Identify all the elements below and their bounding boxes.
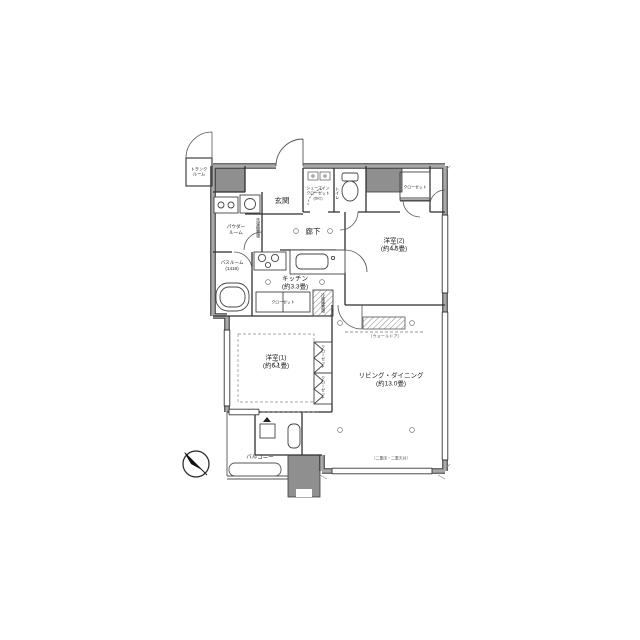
label-kitchen-closet: クローゼット [271, 299, 294, 304]
trunk-room [186, 132, 212, 186]
label-bedroom2-closet: クローゼット [403, 184, 426, 189]
entrance-door [276, 139, 303, 166]
meter-box-notch [296, 489, 312, 497]
label-hallway: 廊下 [306, 227, 321, 237]
label-wall-door: （ウォールドア） [368, 333, 402, 338]
balcony-outline [227, 412, 288, 479]
label-bedroom2: 洋室(2) (約4.5畳) [381, 238, 407, 255]
vanity-icon [214, 197, 238, 213]
stove-icon [254, 252, 286, 270]
counter-box [363, 317, 405, 329]
bedroom2-closet-box [400, 172, 430, 217]
living-door-arc [338, 305, 362, 329]
label-living-dining: リビング・ダイニング (約13.0畳) [359, 373, 424, 390]
bedroom2-door-arc [345, 250, 367, 272]
floor-plan-page: トランク ルーム 玄関 シューズイン クローゼット (SIC) トイレ 廊下 パ… [0, 0, 640, 640]
label-bedroom1-closet-b: クローゼット [321, 376, 325, 399]
compass-icon [183, 451, 209, 477]
label-shoes-closet: シューズイン クローゼット (SIC) [306, 185, 329, 200]
water-heater-icon [260, 417, 300, 448]
label-powder-room: パウダー ルーム [227, 224, 245, 236]
toilet-icon [340, 173, 358, 230]
bedroom1-window [229, 409, 259, 415]
label-balcony: バルコニー [246, 454, 273, 461]
washing-machine-icon [240, 195, 260, 213]
label-kitchen: キッチン (約3.3畳) [282, 276, 308, 293]
label-bathroom: バスルーム (1418) [221, 260, 244, 272]
label-trunk-room: トランク ルーム [191, 167, 208, 178]
meter-box-areas [213, 164, 402, 497]
floor-plan-drawing [0, 0, 640, 640]
label-living-note: （二重床・二重天井） [372, 455, 411, 460]
label-bedroom1-closet-a: クローゼット [321, 345, 325, 368]
label-bedroom1: 洋室(1) (約6.1畳) [263, 355, 289, 372]
label-fridge: 冷蔵庫置場 [321, 293, 325, 313]
label-toilet: トイレ [335, 187, 339, 200]
label-washer: 洗濯機置場 [256, 218, 260, 238]
kitchen-sink-icon [290, 250, 345, 274]
label-entrance: 玄関 [275, 196, 290, 206]
